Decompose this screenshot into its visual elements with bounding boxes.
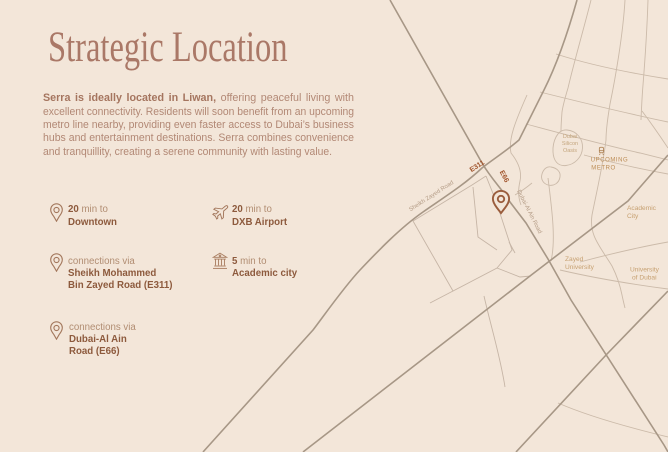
svg-text:University: University <box>565 264 595 271</box>
svg-text:Silicon: Silicon <box>562 141 578 147</box>
svg-text:E66: E66 <box>498 170 510 184</box>
svg-text:Dubai: Dubai <box>563 134 577 140</box>
svg-text:University: University <box>630 267 660 274</box>
svg-text:of Dubai: of Dubai <box>632 275 657 282</box>
svg-text:UPCOMING: UPCOMING <box>591 158 628 164</box>
svg-text:METRO: METRO <box>591 165 615 171</box>
svg-text:Sheikh Zayed Road: Sheikh Zayed Road <box>408 180 455 213</box>
svg-text:City: City <box>627 213 639 220</box>
svg-text:Zayed: Zayed <box>565 256 584 263</box>
svg-text:Academic: Academic <box>627 205 657 212</box>
svg-text:Oasis: Oasis <box>563 148 577 154</box>
